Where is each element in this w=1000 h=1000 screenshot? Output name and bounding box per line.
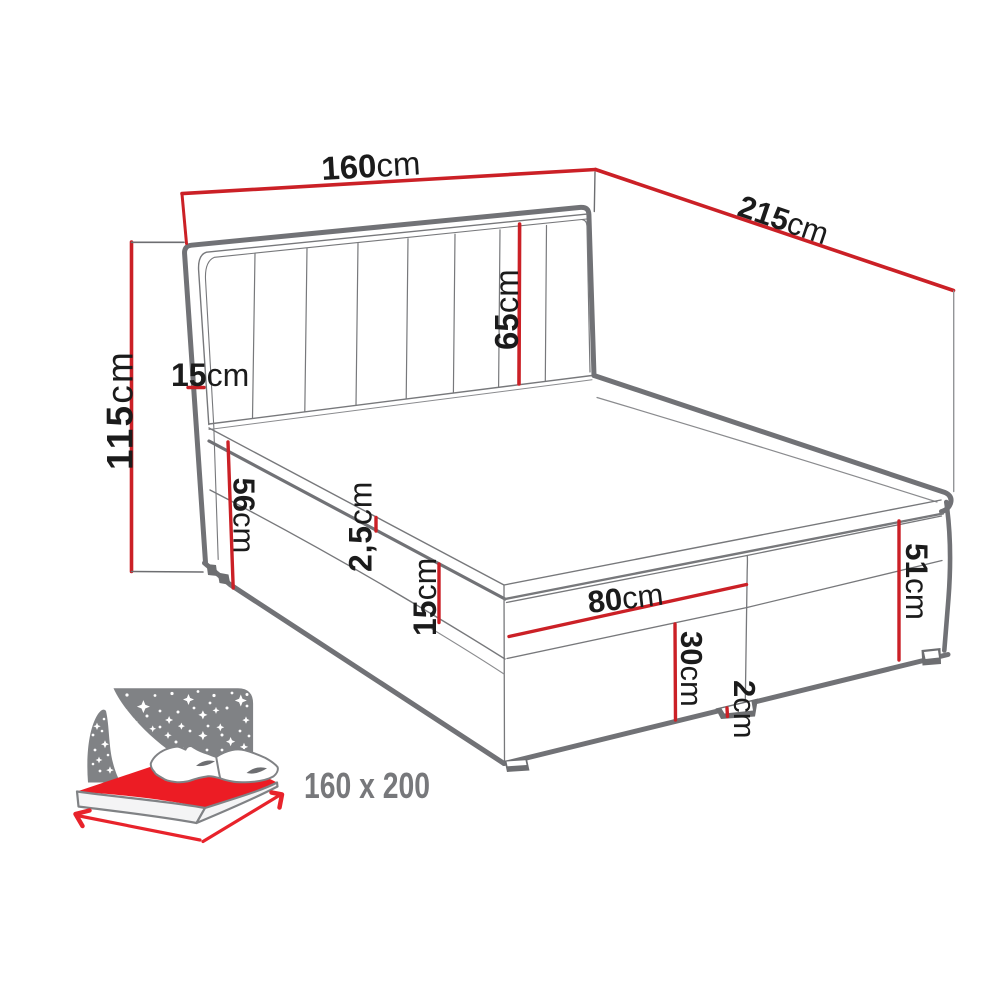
svg-text:15cm: 15cm: [171, 357, 249, 393]
svg-text:2cm: 2cm: [727, 680, 762, 739]
svg-text:30cm: 30cm: [674, 631, 709, 707]
svg-text:115cm: 115cm: [100, 350, 141, 470]
svg-text:56cm: 56cm: [227, 478, 262, 554]
svg-text:65cm: 65cm: [488, 269, 525, 350]
svg-text:160 x 200: 160 x 200: [304, 765, 430, 806]
svg-text:15cm: 15cm: [407, 558, 443, 636]
svg-text:160cm: 160cm: [320, 144, 421, 187]
svg-text:51cm: 51cm: [899, 543, 935, 620]
svg-text:2,5cm: 2,5cm: [343, 481, 379, 572]
